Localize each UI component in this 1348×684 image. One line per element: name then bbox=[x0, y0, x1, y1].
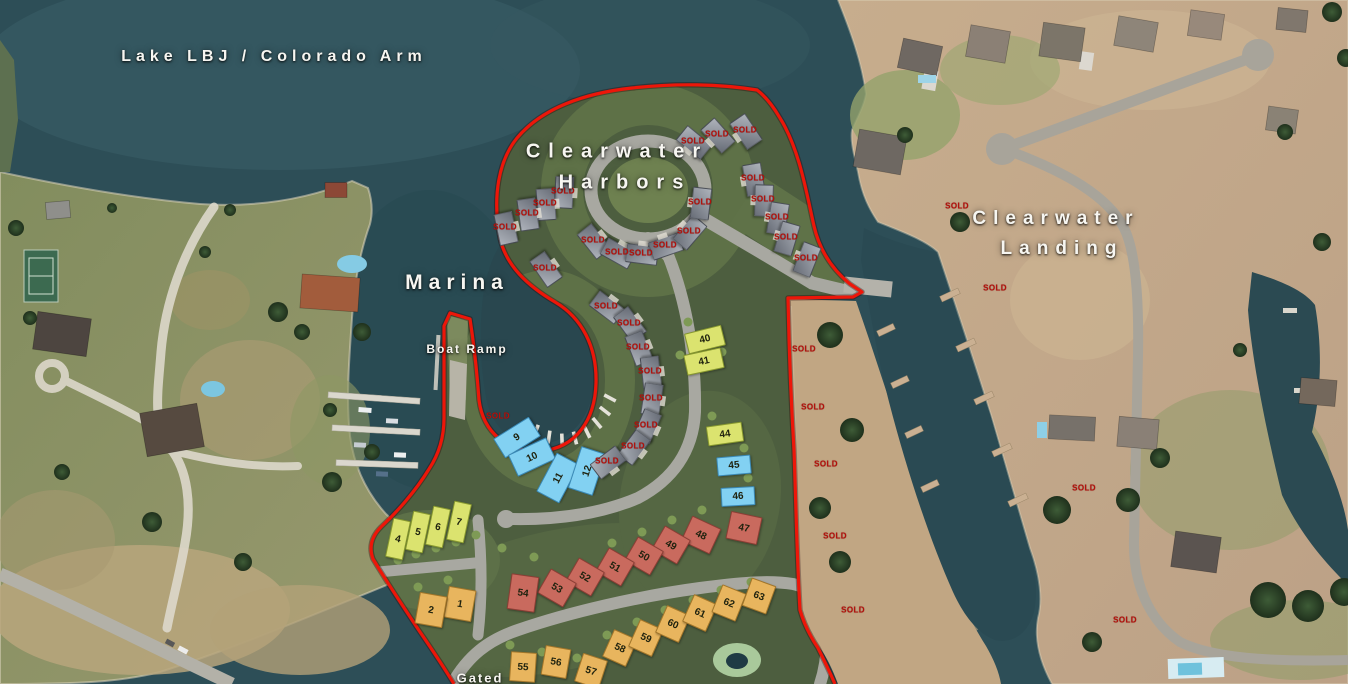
site-map: 1245679101112404144454647484950515253545… bbox=[0, 0, 1348, 684]
tennis-court bbox=[24, 250, 58, 302]
swim-center-pool bbox=[1168, 657, 1225, 679]
community-pool-park bbox=[713, 643, 761, 677]
boat-ramp-strip bbox=[447, 315, 468, 420]
terrain-graphic bbox=[0, 0, 1348, 684]
